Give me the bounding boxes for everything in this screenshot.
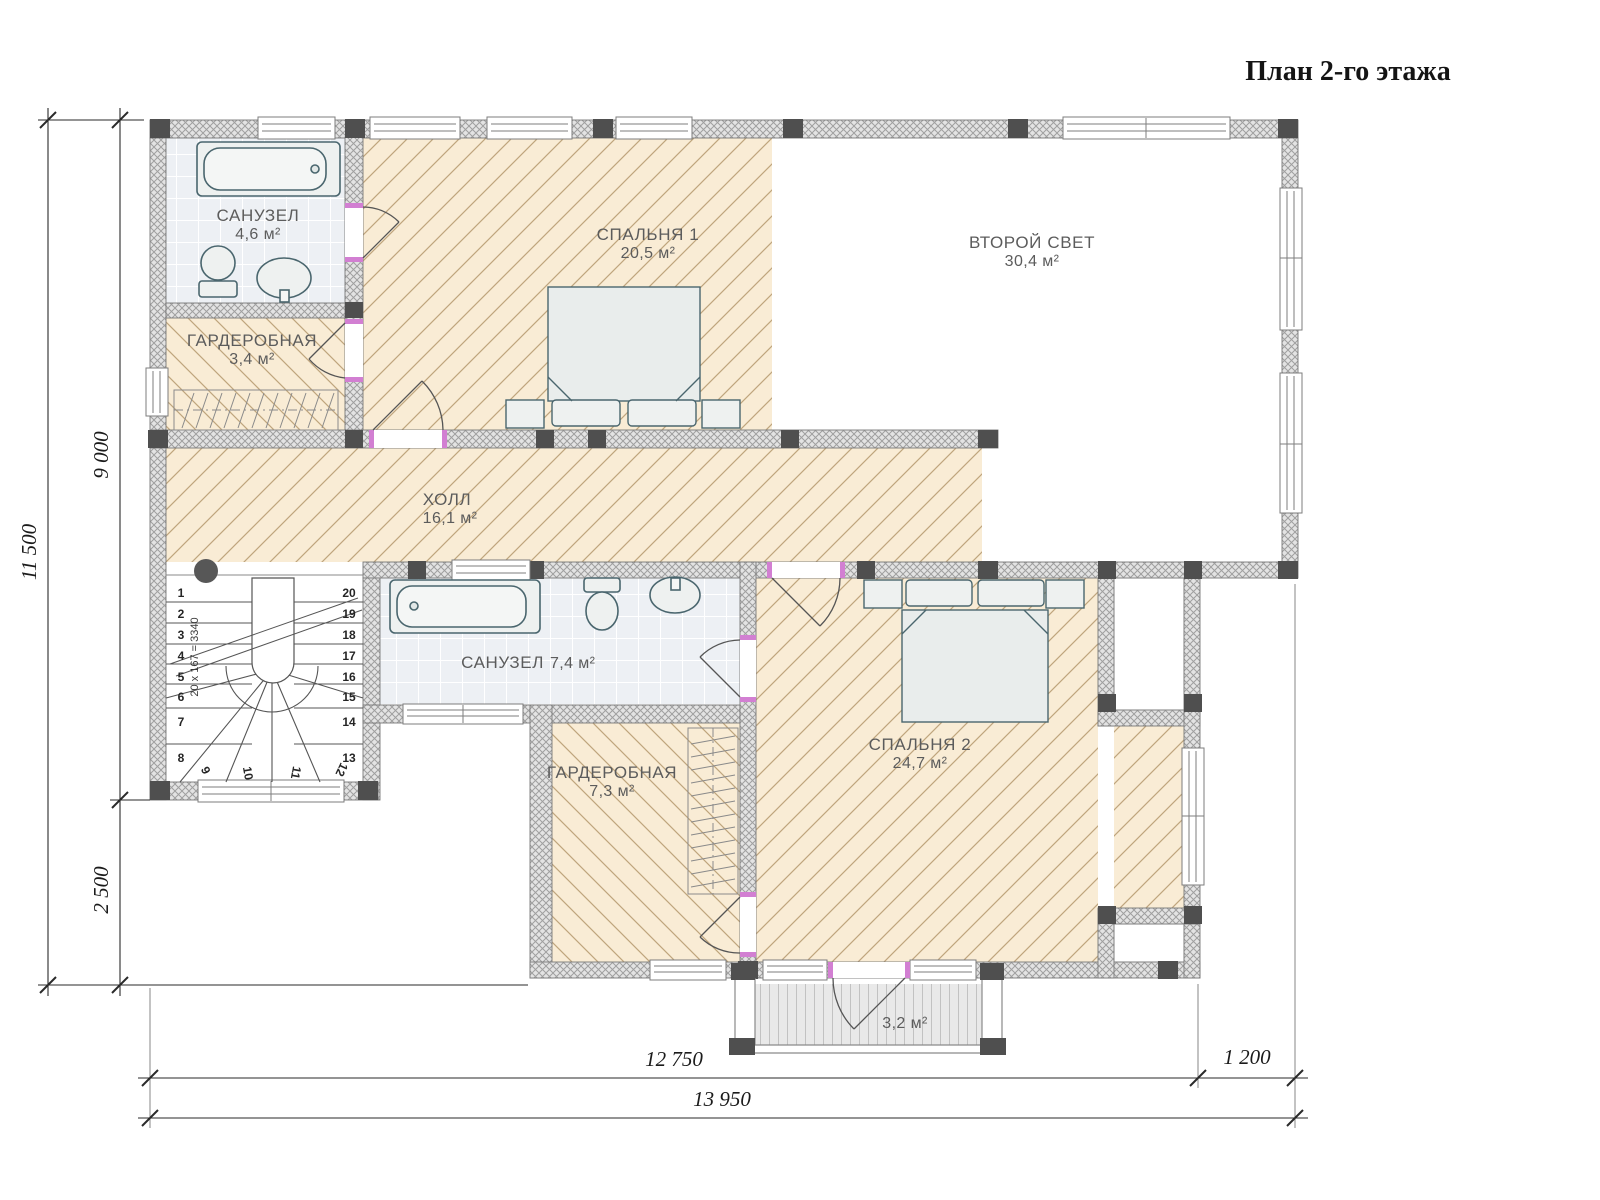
floor-wardrobe-2 [552, 723, 740, 962]
label-bedroom-1: СПАЛЬНЯ 1 [597, 225, 700, 244]
wall-stairs-right [363, 578, 380, 800]
svg-text:3: 3 [178, 628, 185, 642]
wall-left [150, 138, 166, 800]
window-right-svet-b [1280, 373, 1302, 513]
wall-wardrobe2-left [530, 705, 552, 978]
window-bottom-b [763, 960, 827, 980]
wall-bath1-bottom [166, 303, 345, 318]
area-wardrobe-2: 7,3 м² [589, 783, 635, 800]
wall-bath1-right [345, 137, 363, 431]
window-bottom-a [650, 960, 726, 980]
bathtub-2 [390, 580, 540, 633]
window-bottom-c [910, 960, 976, 980]
floor-hall [166, 448, 982, 562]
area-hall: 16,1 м² [423, 510, 478, 527]
svg-text:16: 16 [342, 670, 356, 684]
svg-text:8: 8 [178, 751, 185, 765]
svg-text:7: 7 [178, 715, 185, 729]
area-balcony: 3,2 м² [882, 1015, 928, 1032]
area-bathroom-1: 4,6 м² [235, 226, 281, 243]
staircase: 20 х 167 = 3340 1 2 3 4 5 6 7 8 9 10 11 … [166, 559, 363, 782]
svg-text:14: 14 [342, 715, 356, 729]
svg-text:15: 15 [342, 690, 356, 704]
svg-text:4: 4 [178, 649, 185, 663]
toilet-1 [199, 246, 237, 297]
svg-text:18: 18 [342, 628, 356, 642]
svg-text:2: 2 [178, 607, 185, 621]
label-svet: ВТОРОЙ СВЕТ [969, 233, 1095, 252]
svg-text:19: 19 [342, 607, 356, 621]
area-svet: 30,4 м² [1005, 253, 1060, 270]
stair-newel [194, 559, 218, 583]
window-top-bedroom1-b [487, 117, 572, 139]
area-wardrobe-1: 3,4 м² [229, 351, 275, 368]
dim-left-upper: 9 000 [89, 431, 113, 479]
window-bath2-top [452, 560, 530, 580]
floor-plan-page: 20 х 167 = 3340 1 2 3 4 5 6 7 8 9 10 11 … [0, 0, 1600, 1200]
stair-formula: 20 х 167 = 3340 [189, 617, 201, 696]
bathtub-1 [197, 142, 340, 196]
area-bedroom-2: 24,7 м² [893, 755, 948, 772]
stair-void [252, 578, 294, 683]
svg-text:11: 11 [288, 765, 304, 780]
sink-2 [650, 577, 700, 613]
label-wardrobe-2: ГАРДЕРОБНАЯ [547, 763, 677, 782]
toilet-2 [584, 578, 620, 630]
niche-lower [1114, 924, 1184, 962]
floor-plan-drawing: 20 х 167 = 3340 1 2 3 4 5 6 7 8 9 10 11 … [0, 0, 1600, 1200]
area-bedroom-1: 20,5 м² [621, 245, 676, 262]
svg-text:20: 20 [342, 586, 356, 600]
page-title: План 2-го этажа [1245, 56, 1450, 87]
svg-text:1: 1 [178, 586, 185, 600]
window-stairs-bottom [198, 780, 344, 802]
svg-text:13: 13 [342, 751, 356, 765]
label-bathroom-2: САНУЗЕЛ 7,4 м² [461, 653, 596, 672]
svg-text:10: 10 [240, 766, 256, 782]
label-bedroom-2: СПАЛЬНЯ 2 [869, 735, 972, 754]
window-top-bedroom1-c [616, 117, 692, 139]
dim-bottom-left: 12 750 [645, 1047, 703, 1071]
window-bedroom2-right [1182, 748, 1204, 885]
wall-bedroom1-bottom [150, 430, 998, 448]
svg-text:17: 17 [342, 649, 356, 663]
svg-text:9: 9 [198, 764, 214, 776]
svg-text:5: 5 [178, 670, 185, 684]
label-hall: ХОЛЛ [423, 490, 472, 509]
floor-bedroom-2-bay [1114, 726, 1184, 908]
dim-bottom-total: 13 950 [693, 1087, 751, 1111]
window-top-svet [1063, 117, 1230, 139]
niche-upper [1114, 578, 1184, 710]
window-top-bath1 [258, 117, 335, 139]
dim-left-lower: 2 500 [89, 866, 113, 914]
window-left-wardrobe1 [146, 368, 168, 416]
dim-left-total: 11 500 [17, 523, 41, 580]
label-bathroom-1: САНУЗЕЛ [217, 206, 300, 225]
dim-bottom-right: 1 200 [1223, 1045, 1271, 1069]
window-right-svet-a [1280, 188, 1302, 330]
window-top-bedroom1-a [370, 117, 460, 139]
window-bath2-bottom [403, 704, 523, 724]
label-wardrobe-1: ГАРДЕРОБНАЯ [187, 331, 317, 350]
svg-text:6: 6 [178, 690, 185, 704]
